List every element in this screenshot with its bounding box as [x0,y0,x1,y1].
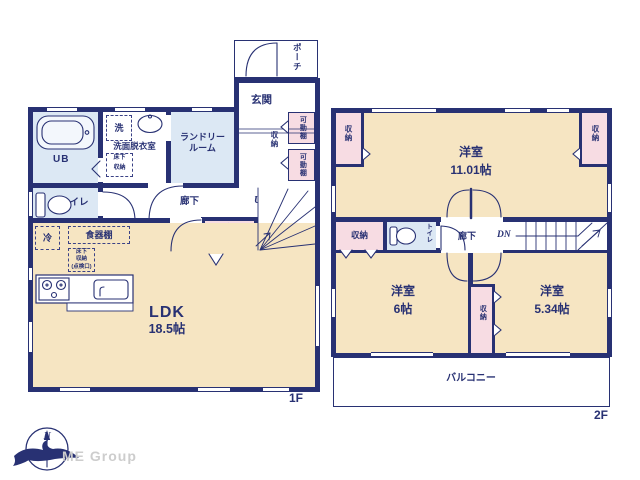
brand-logo-text: ME Group [62,448,137,465]
toilet-2f-door-gap [436,226,440,248]
toilet-room-2f: トイレ [387,222,436,250]
floor-plan-canvas: ポーチ 玄関 収納 可動棚 可動棚 UB 洗 洗面脱衣室 床下 収納 ランドリー… [0,0,640,480]
bedrooms-bottom-door-gap [441,250,503,253]
laundry-l1: ランドリー [171,132,234,143]
floor2-label: 2F [594,408,608,422]
underfloor-l2: 収納 [107,164,132,174]
window [331,186,336,212]
toilet-2f-label: トイレ [424,223,432,249]
closet-middle-left: 収納 [336,222,383,250]
window [198,387,230,392]
closet-top-right: 収納 [579,113,607,167]
ldk-door-gap [170,218,202,223]
bedroom-c-name: 洋室 [502,284,602,298]
bath-door-gap [98,158,103,182]
balcony-sliding-door [371,352,433,357]
bedroom-main-name: 洋室 [421,145,521,159]
window [331,289,336,317]
fridge-label: 冷 [43,233,52,243]
window [263,387,289,392]
closet-center-label: 収納 [478,305,486,335]
porch-room [234,40,318,78]
movable-shelf-top: 可動棚 [288,112,315,144]
ldk-name-label: LDK [127,303,207,322]
closet-center-wall-stub [468,253,473,285]
movable-shelf-top-label: 可動棚 [298,116,306,142]
entrance-label: 玄関 [251,94,272,107]
ldk-size-label: 18.5帖 [127,322,207,337]
stairs-2f [516,222,607,250]
window [28,322,33,352]
underfloor-l1: 床下 [107,154,132,164]
window [47,107,77,112]
window [115,107,145,112]
washer-label: 洗 [114,123,123,133]
bath-room [33,112,98,183]
window [60,387,90,392]
closet-center: 収納 [468,284,495,353]
window [192,107,212,112]
underfloor-storage-washroom: 床下 収納 [106,153,133,177]
hatch-l3: (点検口) [69,264,94,271]
window [505,108,530,113]
f1-entrance-storage-label: 収納 [270,131,279,161]
cupboard-space: 食器棚 [68,226,130,244]
toilet-1f-door-gap [98,192,103,216]
fridge-space: 冷 [35,226,60,250]
window [372,108,436,113]
movable-shelf-bottom: 可動棚 [288,149,315,181]
balcony-label: バルコニー [371,373,571,385]
window [607,289,612,317]
closet-top-right-label: 収納 [591,125,600,155]
hallway-2f-label: 廊下 [458,231,476,242]
bedroom-b-name: 洋室 [353,284,453,298]
laundry-room-label: ランドリー ルーム [171,132,234,154]
bedroom-b-size: 6帖 [353,302,453,316]
cupboard-label: 食器棚 [85,230,112,240]
window [607,184,612,212]
washroom-label: 洗面脱衣室 [103,141,166,151]
underfloor-hatch: 床下 収納 (点検口) [68,248,95,272]
dn-label: DN [497,230,511,241]
porch-label: ポーチ [292,43,302,77]
toilet-1f-label: トイレ [60,197,89,208]
balcony-sliding-door [506,352,570,357]
laundry-l2: ルーム [171,143,234,154]
closet-top-left: 収納 [336,113,364,167]
floor1-label: 1F [289,391,303,405]
window [315,286,320,346]
washer-space: 洗 [106,115,132,141]
laundry-door-gap [166,115,171,141]
bedroom-main-door-gap [441,217,503,222]
window [28,268,33,280]
bedroom-c-size: 5.34帖 [502,302,602,316]
compass-n-label: N [42,430,51,442]
hallway-1f-label: 廊下 [180,196,199,207]
bath-label: UB [53,154,69,166]
washroom-door-gap [148,183,183,188]
closet-middle-left-label: 収納 [336,230,383,240]
hatch-l2: 収納 [69,256,94,263]
window [28,192,33,216]
movable-shelf-bottom-label: 可動棚 [298,153,306,179]
window [547,108,569,113]
bedroom-main-size: 11.01帖 [421,163,521,177]
closet-top-left-label: 収納 [344,125,353,155]
